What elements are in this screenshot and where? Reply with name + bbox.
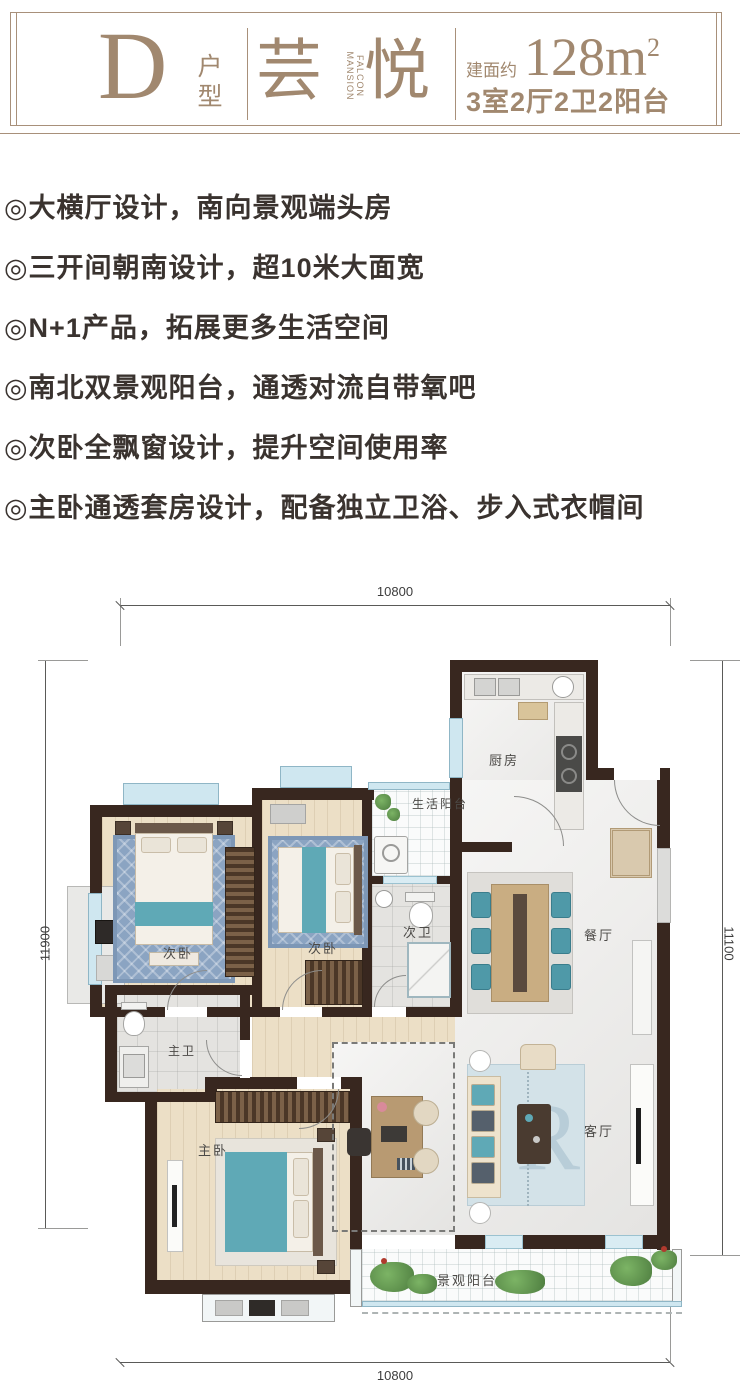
- nightstand: [115, 821, 131, 835]
- potted-plant: [375, 794, 391, 810]
- pillow: [141, 837, 171, 853]
- layout-spec: 3室2厅2卫2阳台: [466, 80, 670, 119]
- wall-segment: [450, 660, 598, 672]
- pillow: [335, 853, 351, 885]
- room-label-second-bath: 次卫: [388, 922, 448, 941]
- header-separator-line: [0, 133, 740, 134]
- table-runner: [513, 894, 527, 992]
- wall-segment: [90, 805, 260, 817]
- header-divider-1: [247, 28, 248, 120]
- door-opening: [372, 1007, 406, 1017]
- sofa-cushion: [471, 1110, 495, 1132]
- pillow: [293, 1200, 309, 1238]
- wall-segment: [145, 1280, 362, 1294]
- poster-page: D 户型 芸 FALCON MANSION 悦 建面约 128m2 3室2厅2卫…: [0, 0, 740, 1390]
- unit-type-label: 户型: [196, 52, 224, 112]
- nightstand: [317, 1260, 335, 1274]
- dimension-line-bottom: [120, 1362, 670, 1363]
- bed-runner: [302, 847, 326, 933]
- table-decor: [525, 1114, 533, 1122]
- room-label-second-bedroom-mid: 次卧: [293, 938, 353, 957]
- dimension-top-value: 10800: [345, 584, 445, 599]
- flower: [381, 1258, 387, 1264]
- wall-segment: [145, 1092, 157, 1294]
- feature-item: ◎主卧通透套房设计，配备独立卫浴、步入式衣帽间: [4, 486, 724, 516]
- bed-blanket: [225, 1152, 287, 1252]
- sliding-door: [383, 876, 437, 884]
- dining-chair: [551, 928, 571, 954]
- wall-segment: [105, 985, 117, 1102]
- tv: [636, 1108, 641, 1164]
- wardrobe: [225, 847, 255, 977]
- balcony-plant: [651, 1250, 677, 1270]
- guest-chair: [413, 1100, 439, 1126]
- nightstand: [217, 821, 233, 835]
- dresser: [270, 804, 306, 824]
- dining-chair: [551, 892, 571, 918]
- dining-chair: [471, 928, 491, 954]
- laptop: [381, 1126, 407, 1142]
- basin: [375, 890, 393, 908]
- wall-segment: [586, 672, 598, 772]
- feature-list: ◎大横厅设计，南向景观端头房 ◎三开间朝南设计，超10米大面宽 ◎N+1产品，拓…: [4, 186, 724, 546]
- balcony-railing-glass: [362, 1301, 682, 1307]
- feature-item: ◎三开间朝南设计，超10米大面宽: [4, 246, 724, 276]
- side-table: [469, 1202, 491, 1224]
- room-label-living: 客厅: [569, 1121, 629, 1140]
- dimension-left-value: 11900: [38, 909, 53, 979]
- tv: [172, 1185, 177, 1227]
- sofa-cushion: [471, 1136, 495, 1158]
- flower: [661, 1246, 667, 1252]
- dining-chair: [471, 892, 491, 918]
- bay-cushion: [215, 1300, 243, 1316]
- feature-item: ◎大横厅设计，南向景观端头房: [4, 186, 724, 216]
- wall-segment: [450, 852, 462, 1017]
- header-inner-line-right: [716, 12, 717, 126]
- dimension-right-value: 11100: [722, 909, 737, 979]
- balcony-door: [485, 1235, 523, 1249]
- balcony-dashed-line: [362, 1312, 682, 1314]
- guest-chair: [413, 1148, 439, 1174]
- area-superscript: 2: [647, 33, 660, 62]
- sideboard: [632, 940, 652, 1035]
- bed-headboard: [135, 823, 213, 833]
- area-prefix: 建面约: [466, 56, 517, 81]
- table-decor: [533, 1136, 540, 1143]
- bed-headboard: [313, 1148, 323, 1256]
- burner: [561, 768, 577, 784]
- feature-item: ◎N+1产品，拓展更多生活空间: [4, 306, 724, 336]
- dining-chair: [551, 964, 571, 990]
- bed-runner: [135, 902, 213, 926]
- feature-item: ◎南北双景观阳台，通透对流自带氧吧: [4, 366, 724, 396]
- balcony-door: [605, 1235, 643, 1249]
- round-basin: [552, 676, 574, 698]
- shower: [407, 942, 451, 998]
- room-label-dining: 餐厅: [569, 925, 629, 944]
- dimension-line-top: [120, 605, 670, 606]
- room-label-service-balcony: 生活阳台: [390, 795, 490, 812]
- bay-table: [249, 1300, 275, 1316]
- balcony-post: [350, 1249, 362, 1307]
- dining-chair: [471, 964, 491, 990]
- room-label-view-balcony: 景观阳台: [417, 1270, 517, 1289]
- bay-window: [280, 766, 352, 788]
- window: [657, 848, 671, 923]
- toilet-tank: [121, 1002, 147, 1010]
- wall-segment: [105, 1092, 215, 1102]
- toilet: [123, 1011, 145, 1036]
- balcony-plant: [610, 1256, 652, 1286]
- window: [449, 718, 463, 778]
- tv-cabinet: [630, 1064, 654, 1206]
- brand-en-line2: MANSION: [345, 51, 355, 100]
- entry-rug: [610, 828, 652, 878]
- brand-english: FALCON MANSION: [345, 31, 365, 121]
- pillow: [177, 837, 207, 853]
- washer-door: [382, 844, 400, 862]
- header-inner-line-left: [16, 12, 17, 126]
- area-value: 128m2: [524, 26, 660, 88]
- burner: [561, 744, 577, 760]
- room-label-master-bedroom: 主卧: [183, 1140, 243, 1159]
- extension-line: [690, 660, 740, 661]
- balcony-glass: [368, 782, 450, 790]
- office-chair: [347, 1128, 371, 1156]
- entry-door-opening: [614, 768, 660, 780]
- unit-letter: D: [98, 18, 167, 114]
- floorplan-section: 10800 10800 11900 11100: [0, 560, 740, 1390]
- spice-shelf: [518, 702, 548, 720]
- pillow: [335, 891, 351, 923]
- room-label-kitchen: 厨房: [474, 750, 534, 769]
- floorplan-drawing: R 厨房 生活阳台 次卫: [65, 640, 695, 1350]
- sofa-cushion: [471, 1084, 495, 1106]
- feature-item: ◎次卧全飘窗设计，提升空间使用率: [4, 426, 724, 456]
- header-divider-2: [455, 28, 456, 120]
- extension-line: [690, 1255, 740, 1256]
- dimension-bottom-value: 10800: [345, 1368, 445, 1383]
- wall-segment: [240, 985, 250, 1040]
- sink: [123, 1054, 145, 1078]
- brand-char-first: 芸: [256, 36, 322, 108]
- bay-window: [123, 783, 219, 805]
- bed-headboard: [354, 845, 362, 935]
- room-label-master-bath: 主卫: [152, 1042, 212, 1059]
- brand-char-second: 悦: [364, 36, 430, 108]
- wall-segment: [252, 788, 374, 800]
- flower-vase: [377, 1102, 387, 1112]
- room-label-second-bedroom-left: 次卧: [148, 943, 208, 962]
- pillow: [293, 1158, 309, 1196]
- wall-segment: [657, 768, 670, 1250]
- side-table: [469, 1050, 491, 1072]
- wall-segment: [450, 842, 512, 852]
- bay-cushion: [281, 1300, 309, 1316]
- armchair: [520, 1044, 556, 1070]
- sofa-cushion: [471, 1162, 495, 1184]
- coffee-table: [517, 1104, 551, 1164]
- kitchen-sink: [474, 678, 496, 696]
- toilet-tank: [405, 892, 435, 902]
- kitchen-sink: [498, 678, 520, 696]
